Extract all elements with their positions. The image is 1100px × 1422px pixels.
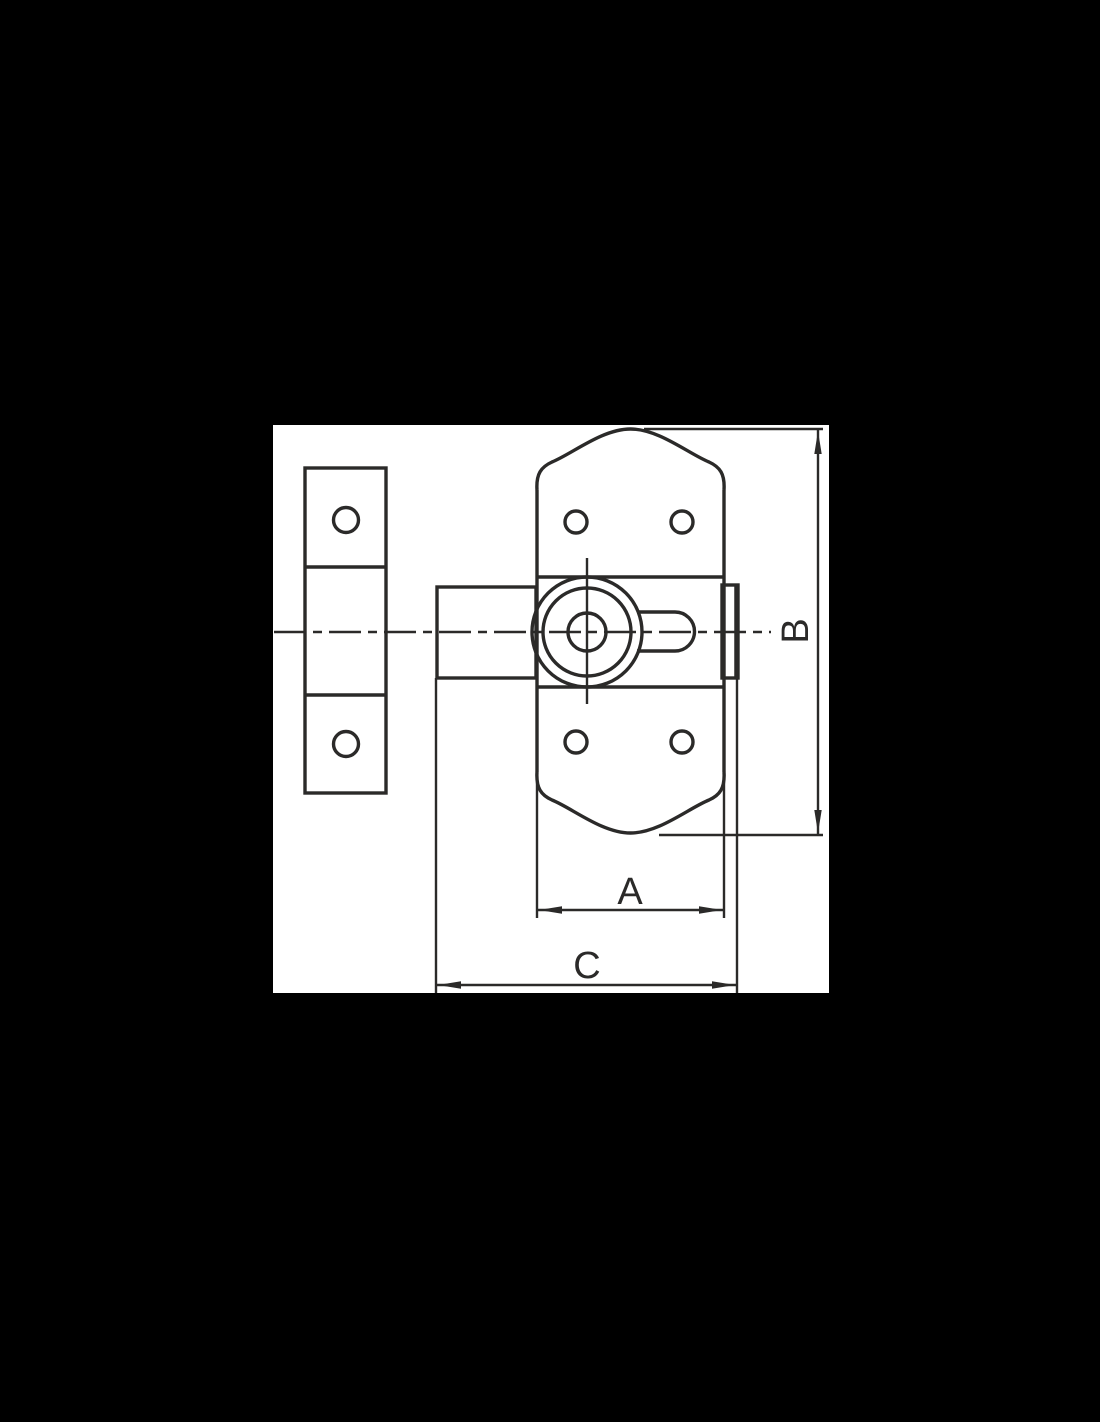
- dim-b-arrow-up: [814, 431, 821, 454]
- strike-plate: [305, 468, 386, 793]
- strike-plate-hole-bottom: [334, 732, 359, 757]
- dim-a-arrow-left: [539, 906, 562, 913]
- dim-c-arrow-right: [712, 981, 735, 988]
- dim-c-label: C: [573, 945, 600, 987]
- body-hole-bottom-left: [565, 731, 587, 753]
- product-drawing-panel: B A C: [273, 425, 829, 993]
- body-hole-top-right: [671, 511, 693, 533]
- lock-bolt-technical-drawing: B A C: [273, 425, 829, 993]
- dim-b-arrow-down: [814, 810, 821, 833]
- dim-a-arrow-right: [699, 906, 722, 913]
- body-hole-top-left: [565, 511, 587, 533]
- page-background: B A C: [0, 0, 1100, 1422]
- dim-b-label: B: [775, 618, 817, 643]
- dim-a-label: A: [617, 871, 643, 913]
- strike-plate-hole-top: [334, 508, 359, 533]
- dim-c-arrow-left: [438, 981, 461, 988]
- dimension-a: A: [537, 772, 724, 918]
- body-hole-bottom-right: [671, 731, 693, 753]
